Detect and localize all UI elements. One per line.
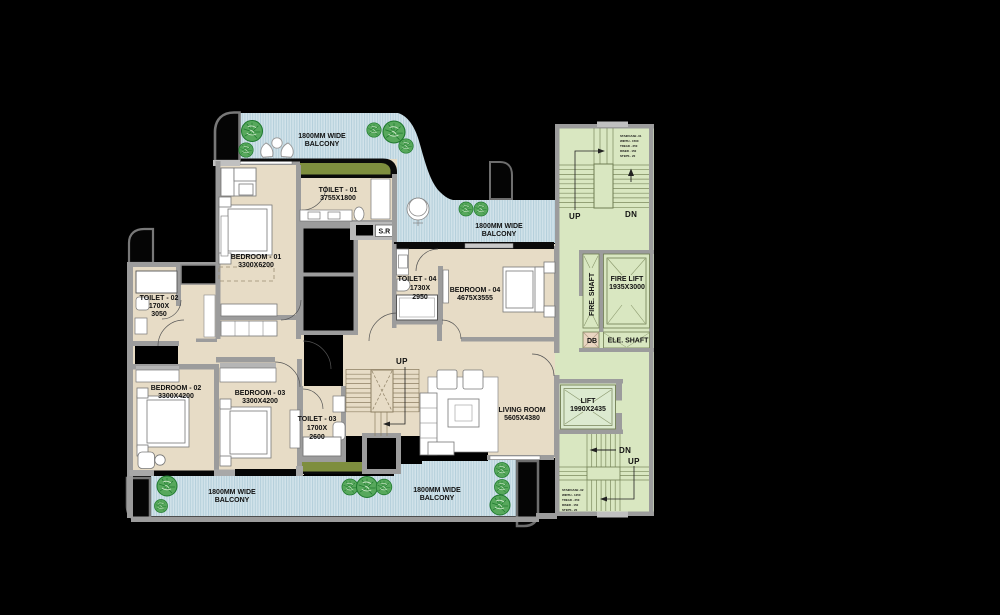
svg-text:RISER - 150: RISER - 150 bbox=[562, 503, 579, 507]
svg-text:3300X4200: 3300X4200 bbox=[158, 393, 194, 400]
svg-text:DN: DN bbox=[625, 210, 637, 219]
svg-text:RISER - 150: RISER - 150 bbox=[620, 149, 637, 153]
svg-text:TOILET - 04: TOILET - 04 bbox=[398, 276, 437, 283]
svg-text:5605X4380: 5605X4380 bbox=[504, 415, 540, 422]
svg-text:2600: 2600 bbox=[309, 434, 325, 441]
svg-text:1800MM WIDE: 1800MM WIDE bbox=[413, 487, 461, 494]
svg-text:1800MM WIDE: 1800MM WIDE bbox=[208, 489, 256, 496]
svg-text:TOILET - 01: TOILET - 01 bbox=[319, 187, 358, 194]
svg-text:3050: 3050 bbox=[151, 311, 167, 318]
svg-text:BALCONY: BALCONY bbox=[482, 231, 517, 238]
svg-text:3300X6200: 3300X6200 bbox=[238, 262, 274, 269]
svg-text:WIDTH - 1500: WIDTH - 1500 bbox=[620, 139, 639, 143]
svg-text:UP: UP bbox=[396, 357, 408, 366]
svg-text:S.R: S.R bbox=[379, 229, 391, 236]
svg-text:ELE. SHAFT: ELE. SHAFT bbox=[608, 338, 650, 345]
svg-text:2950: 2950 bbox=[412, 294, 428, 301]
svg-text:LIVING ROOM: LIVING ROOM bbox=[498, 407, 545, 414]
svg-text:UP: UP bbox=[569, 212, 581, 221]
svg-text:UP: UP bbox=[628, 457, 640, 466]
svg-text:TOILET - 03: TOILET - 03 bbox=[298, 416, 337, 423]
svg-text:WIDTH - 1250: WIDTH - 1250 bbox=[562, 493, 581, 497]
svg-text:3755X1800: 3755X1800 bbox=[320, 195, 356, 202]
svg-text:TREAD - 250: TREAD - 250 bbox=[620, 144, 638, 148]
svg-text:STAIRCASE -02: STAIRCASE -02 bbox=[562, 488, 584, 492]
svg-text:DN: DN bbox=[619, 446, 631, 455]
svg-text:3300X4200: 3300X4200 bbox=[242, 398, 278, 405]
svg-text:STEPS - 20: STEPS - 20 bbox=[620, 154, 636, 158]
svg-text:DB: DB bbox=[587, 338, 597, 345]
svg-text:BEDROOM - 02: BEDROOM - 02 bbox=[151, 385, 202, 392]
svg-text:FIRE LIFT: FIRE LIFT bbox=[611, 276, 644, 283]
svg-text:FIRE. SHAFT: FIRE. SHAFT bbox=[589, 272, 596, 316]
svg-text:BALCONY: BALCONY bbox=[420, 495, 455, 502]
svg-text:BALCONY: BALCONY bbox=[215, 497, 250, 504]
svg-text:LIFT: LIFT bbox=[581, 398, 596, 405]
svg-text:TOILET - 02: TOILET - 02 bbox=[140, 295, 179, 302]
svg-text:1800MM WIDE: 1800MM WIDE bbox=[298, 133, 346, 140]
svg-text:1990X2435: 1990X2435 bbox=[570, 406, 606, 413]
svg-text:STEPS - 20: STEPS - 20 bbox=[562, 508, 578, 512]
svg-text:1935X3000: 1935X3000 bbox=[609, 284, 645, 291]
svg-text:4675X3555: 4675X3555 bbox=[457, 295, 493, 302]
svg-text:BALCONY: BALCONY bbox=[305, 141, 340, 148]
svg-text:BEDROOM - 04: BEDROOM - 04 bbox=[450, 287, 501, 294]
svg-text:BEDROOM - 01: BEDROOM - 01 bbox=[231, 254, 282, 261]
svg-text:1800MM WIDE: 1800MM WIDE bbox=[475, 223, 523, 230]
svg-text:1730X: 1730X bbox=[410, 285, 431, 292]
svg-text:1700X: 1700X bbox=[307, 425, 328, 432]
svg-text:BEDROOM - 03: BEDROOM - 03 bbox=[235, 390, 286, 397]
svg-text:STAIRCASE -01: STAIRCASE -01 bbox=[620, 134, 642, 138]
svg-text:1700X: 1700X bbox=[149, 303, 170, 310]
svg-text:TREAD - 250: TREAD - 250 bbox=[562, 498, 580, 502]
